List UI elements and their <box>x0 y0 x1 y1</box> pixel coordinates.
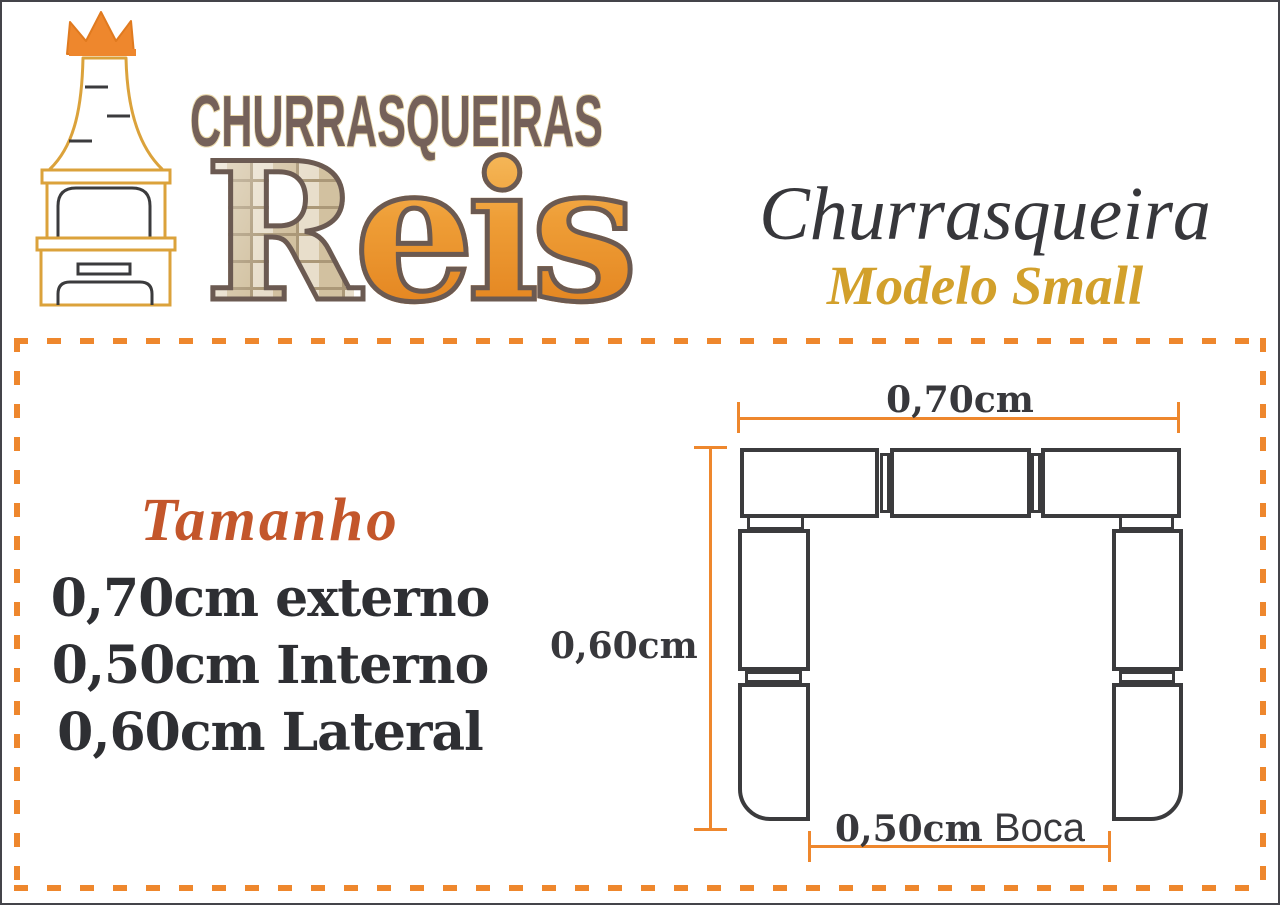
flyer-canvas: CHURRASQUEIRAS Reis Churrasqueira Modelo… <box>0 0 1280 905</box>
size-line-lateral: 0,60cm Lateral <box>20 699 520 766</box>
product-title-block: Churrasqueira Modelo Small <box>710 176 1260 313</box>
block-side-left-lower <box>738 683 810 821</box>
side-dimension-line <box>709 447 712 830</box>
size-heading: Tamanho <box>20 490 520 551</box>
size-line-interno: 0,50cm Interno <box>20 632 520 699</box>
joint-side-right <box>1119 671 1175 683</box>
side-dimension-tick-top <box>694 446 727 449</box>
size-line-externo: 0,70cm externo <box>20 565 520 632</box>
brand-name: Reis <box>204 138 630 328</box>
size-lines: 0,70cm externo 0,50cm Interno 0,60cm Lat… <box>20 565 520 766</box>
product-subtitle: Modelo Small <box>710 258 1260 313</box>
block-back-left <box>740 448 879 518</box>
fireplace-body <box>37 170 175 305</box>
side-dimension-tick-bottom <box>694 828 727 831</box>
bottom-dimension-suffix: Boca <box>983 806 1085 850</box>
joint-back-left <box>880 453 890 513</box>
fireplace-logo-icon <box>22 8 202 320</box>
block-side-right-upper <box>1112 529 1183 671</box>
block-back-right <box>1041 448 1181 518</box>
brand-letter-brick: R <box>204 121 354 344</box>
top-dimension-tick-left <box>737 402 740 433</box>
size-block: Tamanho 0,70cm externo 0,50cm Interno 0,… <box>20 490 520 766</box>
crown-icon <box>67 12 136 56</box>
top-dimension-label: 0,70cm <box>830 379 1090 421</box>
block-side-left-upper <box>738 529 810 671</box>
top-dimension-tick-right <box>1177 402 1180 433</box>
bottom-dimension-value: 0,50cm <box>835 808 983 850</box>
bottom-dimension-label: 0,50cm Boca <box>790 806 1130 851</box>
product-title: Churrasqueira <box>710 176 1260 252</box>
block-side-right-lower <box>1112 683 1183 821</box>
block-back-middle <box>890 448 1031 518</box>
joint-side-left <box>745 671 802 683</box>
joint-back-right <box>1031 453 1041 513</box>
side-dimension-label: 0,60cm <box>550 625 695 667</box>
brand-letters-orange: eis <box>354 121 630 344</box>
chimney-flue <box>50 58 162 171</box>
